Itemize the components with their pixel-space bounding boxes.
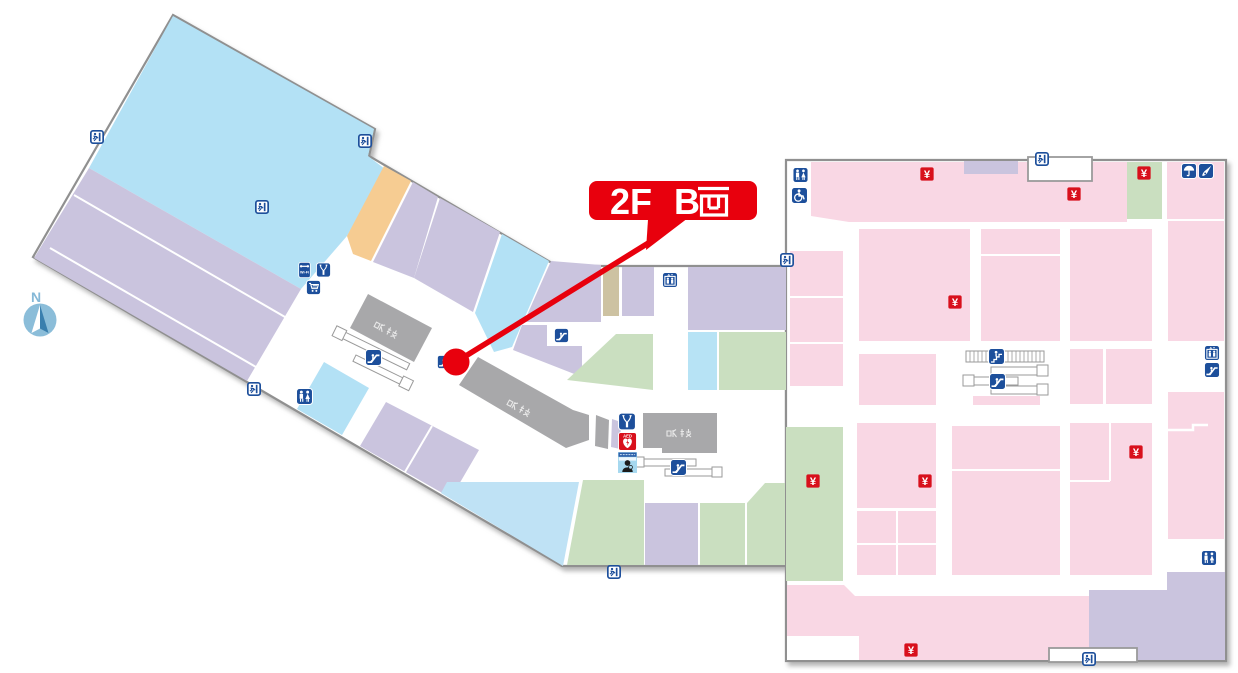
svg-text:B: B [674,181,700,222]
svg-text:N: N [31,289,41,305]
svg-text:2F: 2F [610,181,652,222]
